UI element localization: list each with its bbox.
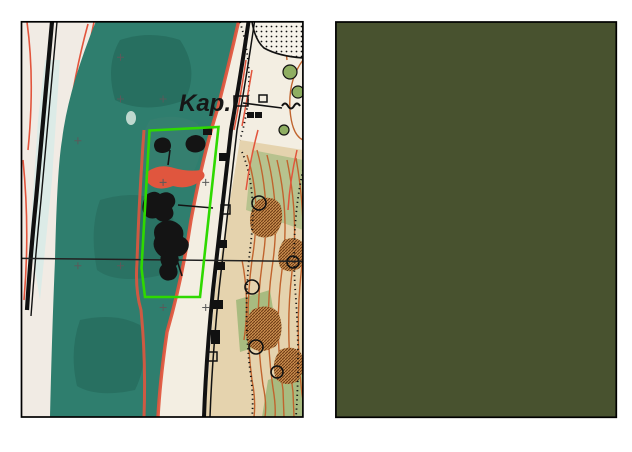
svg-text:Kap.: Kap. (179, 90, 231, 117)
